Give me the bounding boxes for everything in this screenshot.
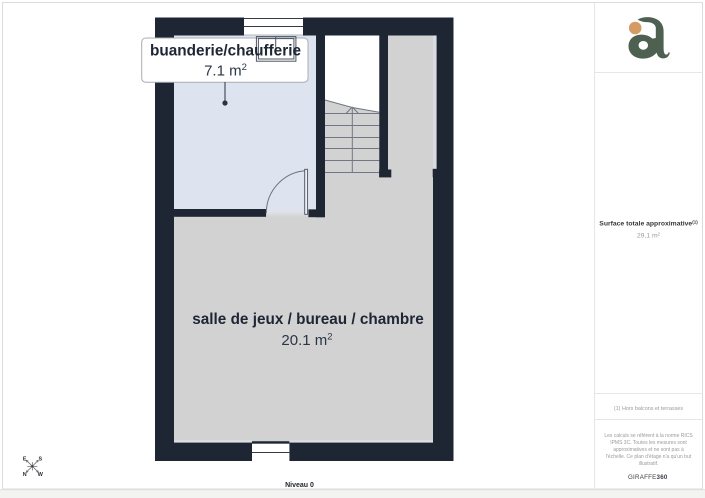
svg-text:Les calculs se réfèrent à la n: Les calculs se réfèrent à la norme RICS xyxy=(604,433,693,439)
svg-text:illustratif.: illustratif. xyxy=(639,461,659,467)
svg-text:W: W xyxy=(38,472,44,478)
svg-text:Niveau 0: Niveau 0 xyxy=(285,482,314,489)
svg-text:29,1 m2: 29,1 m2 xyxy=(637,232,661,240)
svg-text:l'échelle. Ce plan d'étage n'a: l'échelle. Ce plan d'étage n'a qu'un but xyxy=(606,454,692,460)
svg-text:7.1 m2: 7.1 m2 xyxy=(204,62,247,80)
svg-text:S: S xyxy=(38,457,42,463)
svg-text:approximatives et ne sont pas: approximatives et ne sont pas à xyxy=(613,447,684,453)
svg-text:Surface totale approximative(1: Surface totale approximative(1) xyxy=(599,220,698,228)
svg-text:(1) Hors balcons et terrasses: (1) Hors balcons et terrasses xyxy=(614,406,684,412)
svg-text:IPMS 3C. Toutes les mesures so: IPMS 3C. Toutes les mesures sont xyxy=(610,440,687,446)
svg-text:salle de jeux / bureau / chamb: salle de jeux / bureau / chambre xyxy=(192,311,424,328)
svg-text:GIRAFFE360: GIRAFFE360 xyxy=(628,474,668,481)
svg-text:20.1 m2: 20.1 m2 xyxy=(281,331,332,349)
svg-text:buanderie/chaufferie: buanderie/chaufferie xyxy=(150,42,301,59)
svg-text:N: N xyxy=(23,472,27,478)
svg-text:E: E xyxy=(23,457,27,463)
